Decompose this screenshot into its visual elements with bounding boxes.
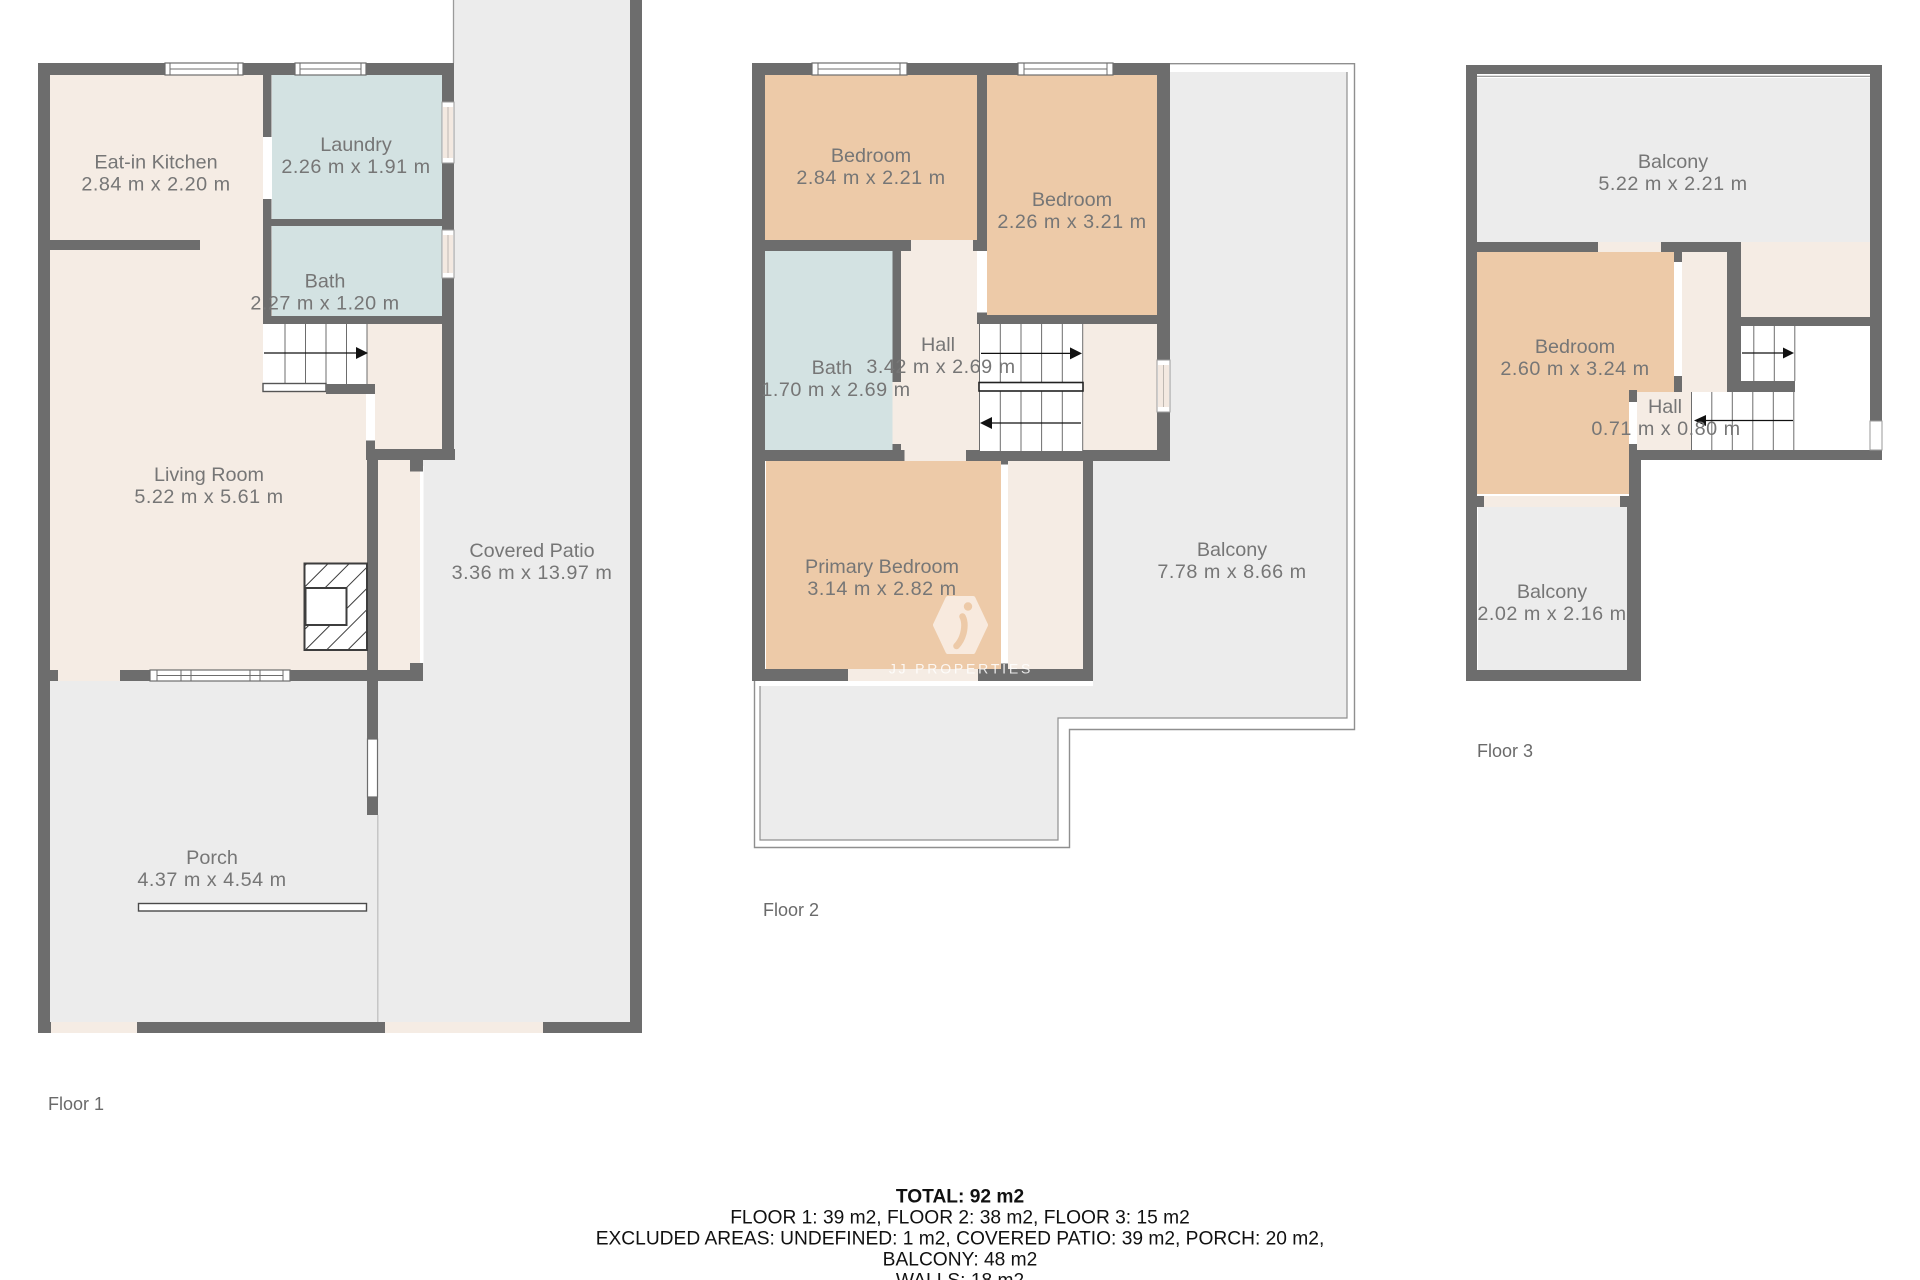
svg-text:2.27 m x 1.20 m: 2.27 m x 1.20 m (250, 292, 399, 314)
svg-text:Hall: Hall (921, 334, 955, 356)
svg-text:Bath: Bath (305, 271, 346, 293)
svg-text:Balcony: Balcony (1197, 539, 1267, 561)
svg-text:Bath: Bath (812, 357, 853, 379)
svg-text:3.14 m x 2.82 m: 3.14 m x 2.82 m (807, 578, 956, 600)
svg-text:TOTAL: 92 m2: TOTAL: 92 m2 (896, 1187, 1024, 1208)
svg-text:Primary Bedroom: Primary Bedroom (805, 556, 959, 578)
svg-text:5.22 m x 2.21 m: 5.22 m x 2.21 m (1598, 173, 1747, 195)
svg-text:2.26 m x 3.21 m: 2.26 m x 3.21 m (997, 211, 1146, 233)
svg-text:Living Room: Living Room (154, 464, 264, 486)
svg-text:2.84 m x 2.21 m: 2.84 m x 2.21 m (796, 167, 945, 189)
svg-text:JJ PROPERTIES: JJ PROPERTIES (889, 661, 1033, 677)
svg-text:2.02 m x 2.16 m: 2.02 m x 2.16 m (1477, 603, 1626, 625)
svg-text:Floor 2: Floor 2 (763, 900, 819, 920)
svg-text:Balcony: Balcony (1517, 581, 1587, 603)
svg-text:Floor 1: Floor 1 (48, 1094, 104, 1114)
svg-text:3.36 m x 13.97 m: 3.36 m x 13.97 m (452, 562, 613, 584)
svg-text:7.78 m x 8.66 m: 7.78 m x 8.66 m (1157, 561, 1306, 583)
svg-text:Bedroom: Bedroom (831, 145, 911, 167)
svg-text:WALLS: 18 m2: WALLS: 18 m2 (896, 1271, 1024, 1280)
svg-text:Floor 3: Floor 3 (1477, 741, 1533, 761)
svg-text:0.71 m x 0.80 m: 0.71 m x 0.80 m (1591, 418, 1740, 440)
svg-text:FLOOR 1: 39 m2, FLOOR 2: 38 m2: FLOOR 1: 39 m2, FLOOR 2: 38 m2, FLOOR 3:… (730, 1208, 1190, 1229)
svg-text:Laundry: Laundry (320, 134, 392, 156)
svg-text:2.60 m x 3.24 m: 2.60 m x 3.24 m (1500, 358, 1649, 380)
svg-text:4.37 m x 4.54 m: 4.37 m x 4.54 m (137, 869, 286, 891)
svg-text:Bedroom: Bedroom (1535, 336, 1615, 358)
svg-text:BALCONY: 48 m2: BALCONY: 48 m2 (883, 1250, 1038, 1271)
svg-text:Bedroom: Bedroom (1032, 189, 1112, 211)
svg-text:1.70 m x 2.69 m: 1.70 m x 2.69 m (761, 379, 910, 401)
svg-text:Porch: Porch (186, 847, 238, 869)
svg-text:3.42 m x 2.69 m: 3.42 m x 2.69 m (866, 356, 1015, 378)
svg-text:2.26 m x 1.91 m: 2.26 m x 1.91 m (281, 156, 430, 178)
svg-text:Covered Patio: Covered Patio (469, 540, 594, 562)
svg-text:2.84 m x 2.20 m: 2.84 m x 2.20 m (81, 173, 230, 195)
svg-text:Balcony: Balcony (1638, 151, 1708, 173)
svg-text:Hall: Hall (1648, 396, 1682, 418)
svg-text:EXCLUDED AREAS: UNDEFINED: 1 m: EXCLUDED AREAS: UNDEFINED: 1 m2, COVERED… (596, 1229, 1325, 1250)
svg-text:5.22 m x 5.61 m: 5.22 m x 5.61 m (134, 486, 283, 508)
svg-text:Eat-in Kitchen: Eat-in Kitchen (94, 152, 217, 174)
